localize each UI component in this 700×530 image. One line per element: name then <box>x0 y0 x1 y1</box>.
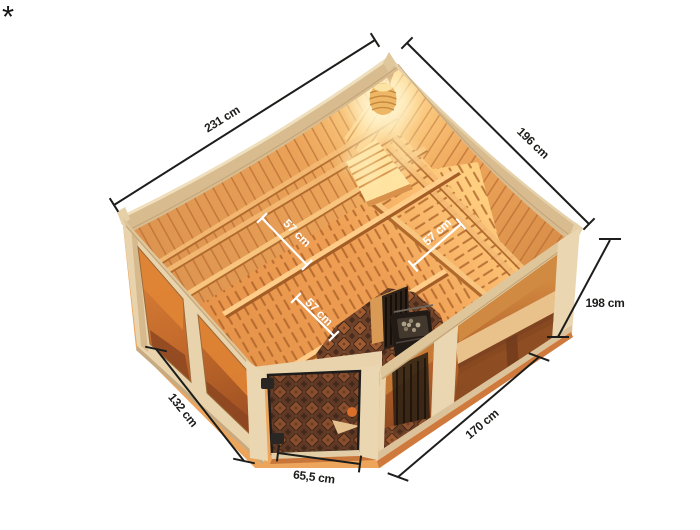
svg-text:*: * <box>2 0 14 34</box>
svg-text:198 cm: 198 cm <box>586 296 625 310</box>
